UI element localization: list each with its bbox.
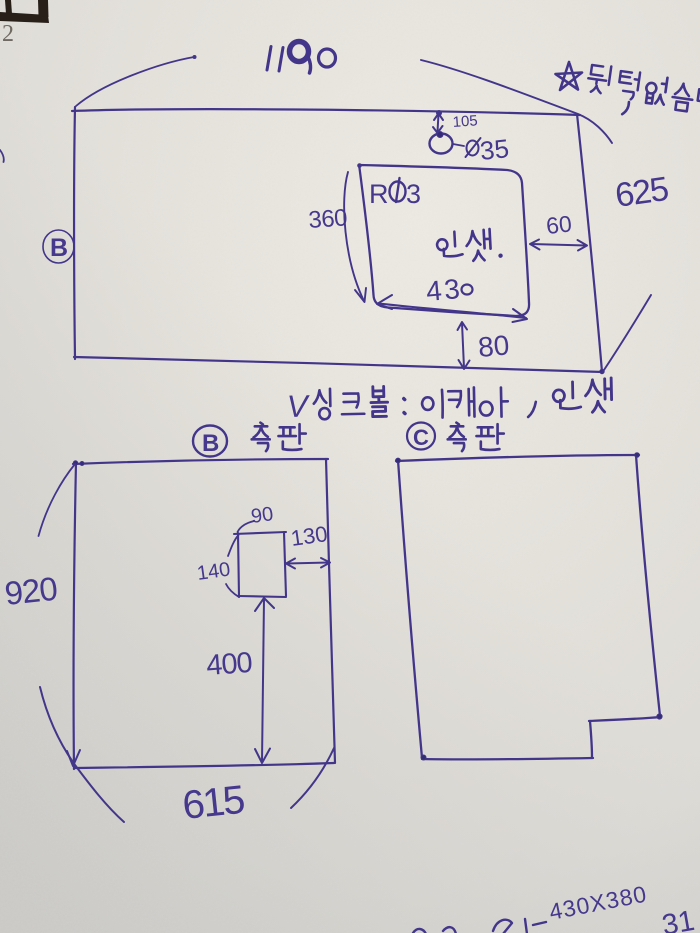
svg-text:35: 35	[478, 133, 510, 166]
svg-text:615: 615	[180, 778, 246, 828]
svg-text:31: 31	[660, 905, 697, 933]
svg-text:130: 130	[289, 521, 329, 551]
svg-text:360: 360	[308, 204, 348, 234]
svg-text:80: 80	[477, 329, 511, 363]
svg-text:R: R	[369, 179, 389, 209]
svg-text:140: 140	[196, 559, 232, 585]
svg-text:B: B	[50, 234, 68, 262]
svg-text:400: 400	[205, 647, 253, 682]
svg-text:2: 2	[2, 21, 14, 47]
svg-text:105: 105	[452, 112, 478, 131]
svg-text:C: C	[413, 425, 429, 450]
svg-text:B: B	[202, 430, 219, 457]
svg-text:60: 60	[545, 210, 573, 239]
svg-text:920: 920	[3, 570, 59, 612]
svg-text:90: 90	[250, 503, 275, 528]
svg-text:625: 625	[613, 170, 671, 215]
svg-text:43: 43	[425, 273, 464, 307]
svg-text:3: 3	[406, 179, 421, 209]
